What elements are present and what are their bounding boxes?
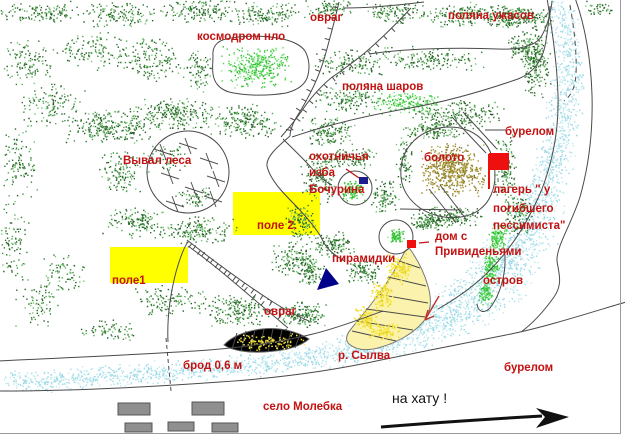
map-label: овраг [264,306,296,319]
map-label: пессимиста" [493,220,566,233]
trail-top-edge [344,2,424,8]
haunted-pointer-dash [419,242,429,243]
map-label: болото [424,152,464,165]
haunted-house-marker [407,240,416,248]
map-label: овраг [310,12,342,25]
river-bank-near-lower [0,311,383,361]
map-label: остров [483,275,523,288]
map-canvas: оврагкосмодром нлополяна ужасовполяна ша… [0,0,625,438]
map-label: бурелом [504,362,553,375]
map-label: брод 0,6 м [183,360,242,373]
hunter-hut-marker [359,177,368,184]
camp-flag-icon [489,153,509,170]
route-arrow-line [381,416,542,427]
ford-crossing-dashed [166,338,171,391]
route-arrow-head [536,408,569,428]
swamp-outline [401,127,495,218]
ravine-upper-line2 [281,8,411,137]
map-label: поле 2. [257,220,297,233]
map-label: космодром нло [197,31,285,44]
map-label: село Молебка [263,401,342,414]
forest-speckles [1,0,613,341]
map-label: Бочурина [309,184,364,197]
village-building [212,423,238,432]
map-label: бурелом [505,126,554,139]
map-label: охотничья [309,151,369,164]
village-building [118,403,150,415]
village-building [192,402,224,415]
ravine-hachure-ticks [290,12,411,130]
map-label: пирамидки [332,253,395,266]
village-building [168,422,194,431]
map-label: погибшего [493,203,554,216]
map-label: поляна ужасов [448,10,534,23]
village-building [125,423,152,432]
map-label: р. Сылва [338,350,390,363]
map-label: на хату ! [392,392,447,405]
map-label: Привиденьями [435,246,522,259]
map-label: Вывал леса [123,155,191,168]
map-label: изба [309,167,335,180]
ravine-hachure-ticks [286,7,338,131]
hut-pointer-line [346,169,359,178]
map-label: лагерь " у [493,184,550,197]
map-label: поляна шаров [342,81,423,94]
map-label: дом с [435,231,467,244]
map-label: поле1 [112,275,146,288]
